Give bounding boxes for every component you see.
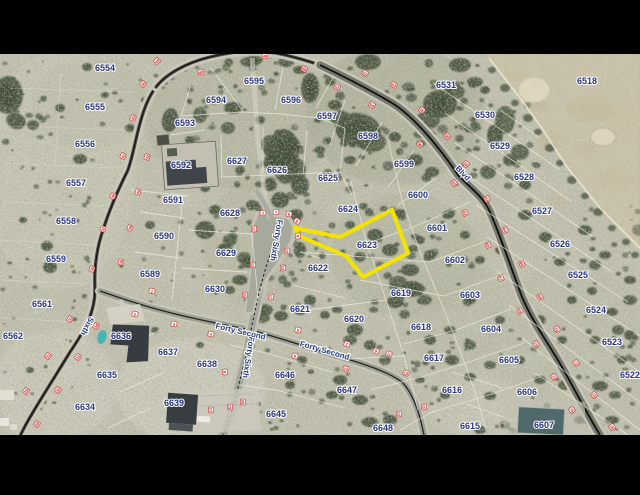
svg-text:6526: 6526 [550, 239, 570, 249]
svg-text:6596: 6596 [281, 95, 301, 105]
svg-text:6525: 6525 [568, 270, 588, 280]
svg-text:6597: 6597 [317, 111, 337, 121]
svg-text:6522: 6522 [620, 370, 640, 380]
svg-text:6606: 6606 [517, 387, 537, 397]
svg-text:6618: 6618 [411, 322, 431, 332]
svg-text:6604: 6604 [481, 324, 501, 334]
svg-text:6556: 6556 [75, 139, 95, 149]
svg-text:6591: 6591 [163, 195, 183, 205]
svg-text:6636: 6636 [111, 331, 131, 341]
svg-text:6626: 6626 [267, 165, 287, 175]
svg-text:6615: 6615 [460, 421, 480, 431]
svg-text:6530: 6530 [475, 110, 495, 120]
svg-text:6637: 6637 [158, 347, 178, 357]
svg-text:6559: 6559 [46, 254, 66, 264]
svg-text:6555: 6555 [85, 102, 105, 112]
svg-text:6627: 6627 [227, 156, 247, 166]
svg-text:6605: 6605 [499, 355, 519, 365]
svg-text:6595: 6595 [244, 76, 264, 86]
svg-text:6590: 6590 [154, 231, 174, 241]
svg-text:6635: 6635 [97, 370, 117, 380]
svg-text:6639: 6639 [164, 398, 184, 408]
svg-text:6554: 6554 [95, 63, 115, 73]
svg-text:6599: 6599 [394, 159, 414, 169]
svg-text:6629: 6629 [216, 248, 236, 258]
svg-text:6624: 6624 [338, 204, 358, 214]
svg-text:6529: 6529 [490, 141, 510, 151]
svg-text:6603: 6603 [460, 290, 480, 300]
svg-text:6616: 6616 [442, 385, 462, 395]
svg-text:6645: 6645 [266, 409, 286, 419]
svg-text:6527: 6527 [532, 206, 552, 216]
svg-text:6589: 6589 [140, 269, 160, 279]
svg-text:6592: 6592 [171, 160, 191, 170]
svg-text:6528: 6528 [514, 172, 534, 182]
svg-text:6600: 6600 [408, 190, 428, 200]
svg-text:6598: 6598 [358, 131, 378, 141]
svg-text:6524: 6524 [586, 305, 606, 315]
svg-text:6620: 6620 [344, 314, 364, 324]
svg-text:6562: 6562 [3, 331, 23, 341]
svg-text:6619: 6619 [391, 288, 411, 298]
svg-text:6625: 6625 [318, 173, 338, 183]
svg-text:6630: 6630 [205, 284, 225, 294]
svg-text:6617: 6617 [424, 353, 444, 363]
svg-text:6602: 6602 [445, 255, 465, 265]
svg-text:6638: 6638 [197, 359, 217, 369]
svg-text:6558: 6558 [56, 216, 76, 226]
svg-text:6646: 6646 [275, 370, 295, 380]
svg-text:6593: 6593 [175, 118, 195, 128]
svg-text:6601: 6601 [427, 223, 447, 233]
svg-text:6518: 6518 [577, 76, 597, 86]
svg-text:6622: 6622 [308, 263, 328, 273]
svg-text:6621: 6621 [290, 304, 310, 314]
svg-text:6523: 6523 [602, 337, 622, 347]
svg-text:6634: 6634 [75, 402, 95, 412]
svg-text:6648: 6648 [373, 423, 393, 433]
svg-text:6561: 6561 [32, 299, 52, 309]
svg-text:6623: 6623 [357, 240, 377, 250]
svg-text:6607: 6607 [534, 420, 554, 430]
svg-text:48: 48 [263, 54, 268, 59]
svg-text:6594: 6594 [206, 95, 226, 105]
svg-text:6647: 6647 [337, 385, 357, 395]
svg-text:6628: 6628 [220, 208, 240, 218]
svg-text:6557: 6557 [66, 178, 86, 188]
svg-text:6531: 6531 [436, 80, 456, 90]
